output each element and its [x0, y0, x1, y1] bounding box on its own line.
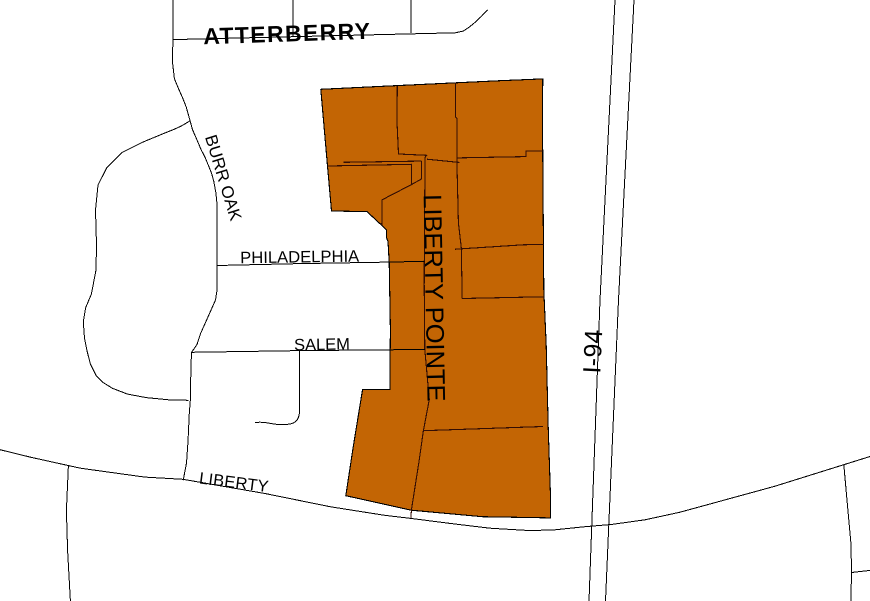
svg-text:ATTERBERRY: ATTERBERRY [203, 18, 372, 50]
svg-text:SALEM: SALEM [294, 335, 350, 354]
svg-text:LIBERTY POINTE: LIBERTY POINTE [418, 194, 450, 402]
svg-text:PHILADELPHIA: PHILADELPHIA [240, 247, 360, 268]
svg-text:I-94: I-94 [578, 329, 608, 374]
